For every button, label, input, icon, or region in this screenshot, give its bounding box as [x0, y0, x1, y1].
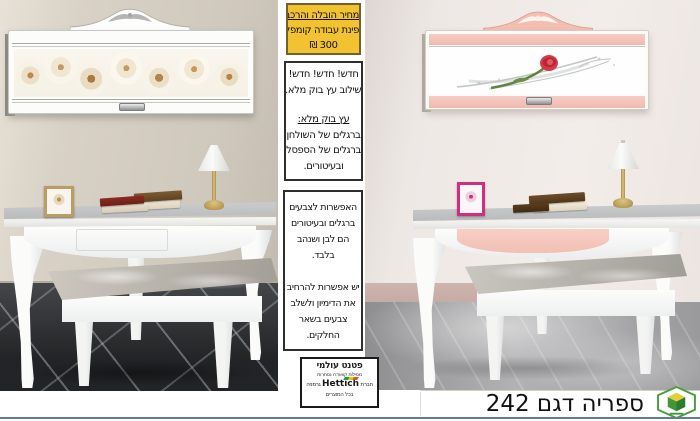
lamp-shade — [198, 145, 230, 171]
cabinet-trim-line — [12, 43, 250, 44]
options-line: החלקים. — [285, 328, 361, 344]
beech-wood-detail: ברגלים של הספסל — [286, 143, 361, 159]
company-prefix: חברת — [361, 382, 373, 388]
right-room-scene — [365, 0, 700, 390]
new-line: שילוב עץ בוק מלא. — [286, 83, 361, 99]
bench-leg — [210, 318, 236, 388]
options-line: יש אפשרות להרחיב — [285, 280, 361, 296]
patent-hettich-box: פטנט עולמי מסילות קוואדרו נסתרות חברת He… — [300, 357, 379, 408]
patent-footer: בכל המוצרים — [302, 391, 377, 399]
lamp-base — [204, 200, 224, 210]
right-books — [513, 190, 589, 216]
left-cabinet-body — [8, 30, 254, 114]
color-options-box: האפשרות לצבעים ברגלים ובעיטורים הם לבן ו… — [283, 190, 363, 351]
left-cabinet-floral-print — [14, 49, 248, 97]
table-pink-apron-panel — [457, 229, 609, 253]
options-line: הם לבן ושנהב — [285, 232, 361, 248]
price-box-title: מחיר הובלה והרכבה — [288, 8, 359, 23]
beech-wood-heading: עץ בוק מלא: — [286, 112, 361, 128]
options-line: ברגלים ובעיטורים — [285, 216, 361, 232]
bench-leg — [483, 314, 507, 380]
hettich-stripes-icon — [343, 377, 359, 380]
left-table-lamp — [196, 142, 234, 212]
rose-splash-art — [429, 47, 645, 94]
delivery-price-box: מחיר הובלה והרכבה פינת עבודה קומפלט 300 … — [286, 3, 361, 55]
new-line: חדש! חדש! חדש! — [286, 67, 361, 83]
left-picture-frame — [44, 186, 74, 217]
right-wall-cabinet — [425, 8, 651, 110]
left-room-scene — [0, 0, 278, 393]
cabinet-pink-band-top — [429, 34, 645, 45]
right-bench — [465, 254, 687, 384]
left-bench — [48, 258, 278, 392]
footer-divider-line — [420, 392, 421, 416]
right-cabinet-body — [425, 30, 649, 110]
table-drawer — [76, 229, 168, 251]
bench-cushion-sheen — [48, 258, 278, 300]
patent-company-line: חברת Hettich גרמניה — [302, 379, 377, 391]
lamp-base — [613, 198, 633, 208]
table-leg — [413, 238, 447, 388]
product-title: ספריה דגם 242 — [486, 390, 644, 418]
right-picture-frame — [457, 182, 485, 216]
price-box-subtitle: פינת עבודה קומפלט — [288, 23, 359, 38]
lamp-shade — [607, 143, 639, 169]
cabinet-trim-line — [12, 46, 250, 47]
left-books — [100, 190, 178, 216]
bench-cushion-sheen — [465, 254, 687, 294]
options-line: צבעים בשאר — [285, 312, 361, 328]
patent-subtitle: מסילות קוואדרו נסתרות — [302, 372, 377, 379]
beech-wood-detail: ובעיטורים. — [286, 159, 361, 175]
left-cabinet-handle — [119, 103, 145, 111]
table-leg — [10, 236, 46, 388]
beech-wood-detail: ברגלים של השולחן — [286, 128, 361, 144]
right-cabinet-handle — [526, 97, 552, 105]
lamp-stem — [212, 171, 216, 203]
cabinet-trim-line — [12, 99, 250, 100]
bench-leg — [633, 312, 658, 374]
options-line: בלבד. — [285, 248, 361, 264]
left-cabinet-crest — [70, 6, 190, 32]
patent-title: פטנט עולמי — [302, 361, 377, 372]
flyer-canvas: מחיר הובלה והרכבה פינת עבודה קומפלט 300 … — [0, 0, 700, 421]
brand-logo-hexagon-icon — [655, 386, 698, 419]
left-wall-cabinet — [8, 6, 256, 114]
hettich-brand: Hettich — [322, 379, 359, 391]
lamp-stem — [621, 169, 625, 201]
new-product-box: חדש! חדש! חדש! שילוב עץ בוק מלא. עץ בוק … — [284, 61, 363, 181]
right-table-lamp — [605, 140, 641, 214]
footer-blue-line — [0, 417, 700, 419]
options-line: האפשרות לצבעים — [285, 200, 361, 216]
right-cabinet-rose-print — [429, 47, 645, 94]
bench-leg — [72, 320, 96, 386]
options-line: את הדימיון ולשלב — [285, 296, 361, 312]
price-box-amount: 300 ₪ — [288, 38, 359, 53]
company-suffix: גרמניה — [306, 382, 320, 388]
